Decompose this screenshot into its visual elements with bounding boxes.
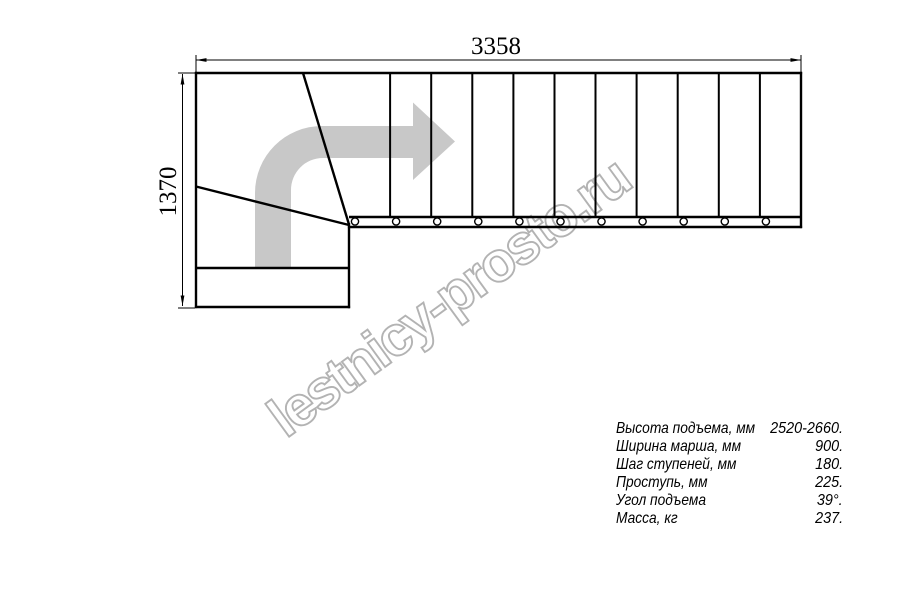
svg-text:lestnicy-prosto.ru: lestnicy-prosto.ru (256, 145, 641, 449)
svg-text:1370: 1370 (155, 167, 182, 217)
svg-text:3358: 3358 (471, 33, 521, 60)
